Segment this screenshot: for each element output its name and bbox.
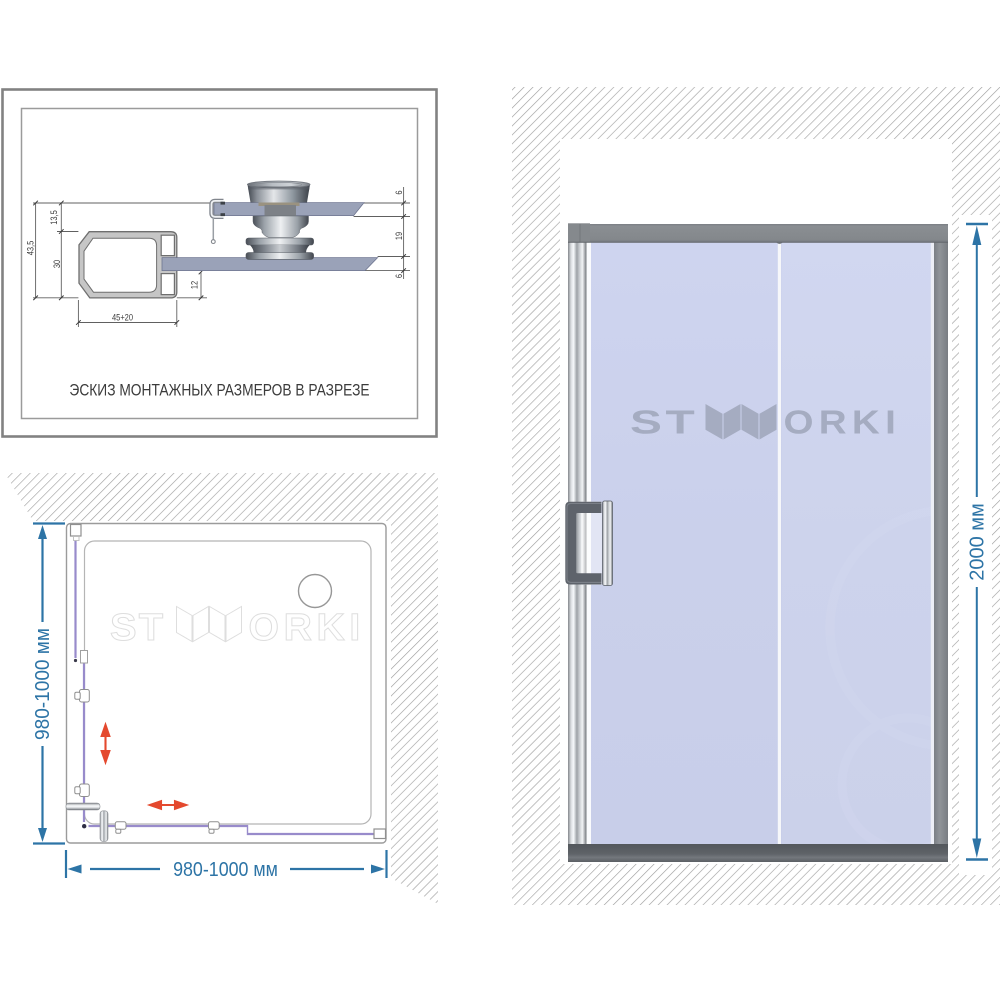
svg-text:43,5: 43,5 [26, 240, 36, 255]
svg-text:ЭСКИЗ МОНТАЖНЫХ РАЗМЕРОВ В РАЗ: ЭСКИЗ МОНТАЖНЫХ РАЗМЕРОВ В РАЗРЕЗЕ [69, 381, 369, 400]
svg-text:980-1000 мм: 980-1000 мм [31, 628, 54, 740]
svg-text:19: 19 [394, 231, 404, 240]
svg-text:980-1000 мм: 980-1000 мм [173, 859, 278, 881]
svg-text:12: 12 [190, 280, 200, 289]
svg-text:ORKI: ORKI [784, 403, 902, 441]
svg-text:45+20: 45+20 [112, 313, 133, 323]
svg-text:2000 мм: 2000 мм [967, 503, 989, 581]
svg-text:ST: ST [110, 607, 165, 649]
svg-text:6: 6 [394, 274, 404, 279]
svg-text:ORKI: ORKI [249, 607, 365, 649]
svg-text:30: 30 [52, 259, 62, 268]
svg-text:6: 6 [394, 190, 404, 195]
svg-text:13,5: 13,5 [49, 210, 59, 225]
svg-text:ST: ST [630, 404, 698, 441]
